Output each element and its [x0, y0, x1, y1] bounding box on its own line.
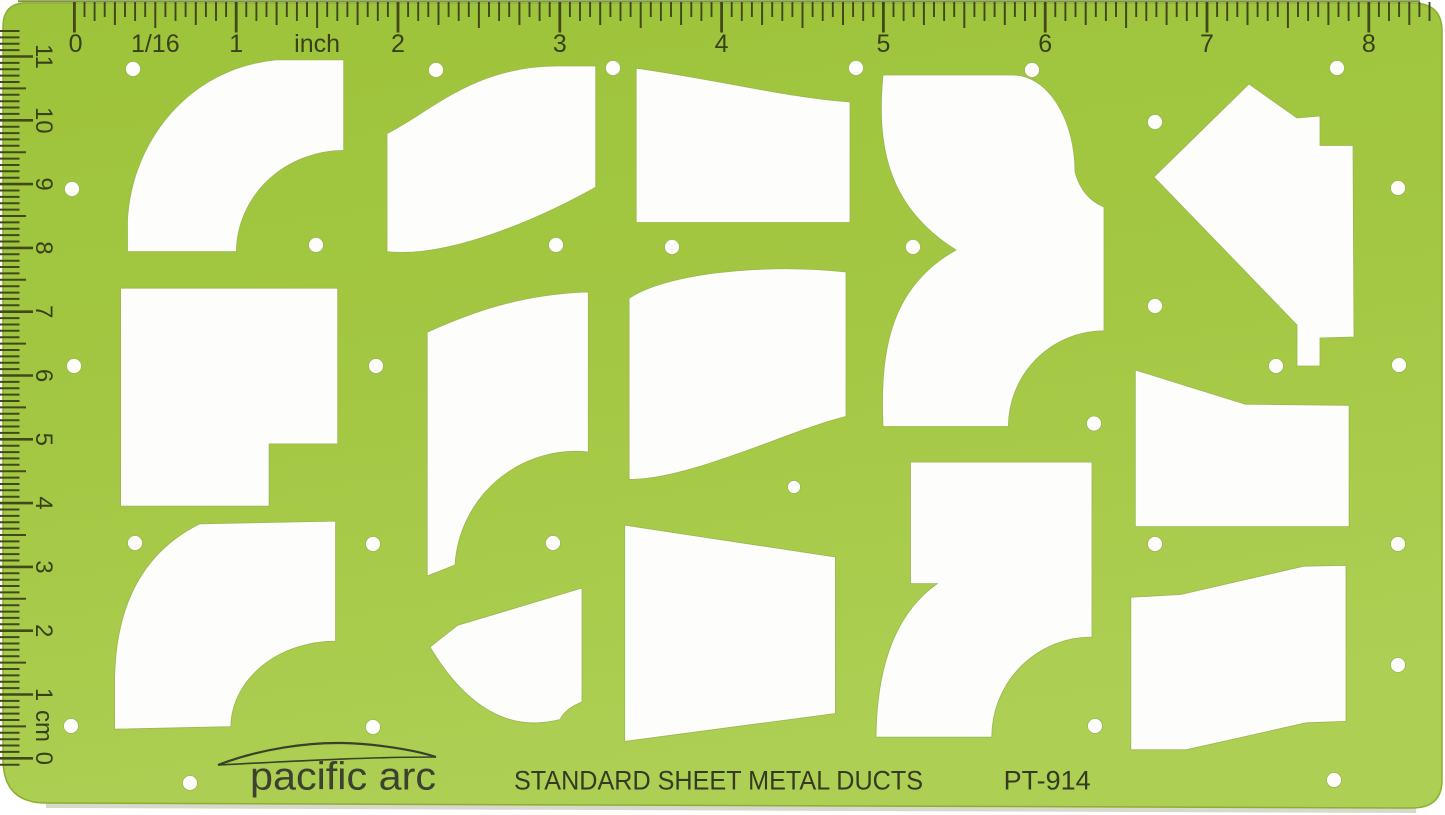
svg-text:inch: inch — [294, 30, 340, 58]
svg-text:5: 5 — [30, 433, 57, 446]
svg-text:4: 4 — [30, 496, 57, 509]
svg-text:0: 0 — [69, 30, 83, 58]
svg-text:1/16: 1/16 — [131, 30, 180, 58]
svg-text:2: 2 — [391, 30, 405, 58]
svg-text:7: 7 — [30, 305, 57, 318]
svg-text:pacific arc: pacific arc — [250, 756, 436, 799]
svg-text:4: 4 — [715, 30, 729, 58]
svg-text:10: 10 — [30, 107, 57, 134]
svg-text:5: 5 — [876, 30, 890, 58]
svg-text:11: 11 — [30, 44, 57, 69]
svg-text:STANDARD SHEET METAL DUCTS: STANDARD SHEET METAL DUCTS — [514, 766, 923, 796]
svg-text:0: 0 — [30, 752, 57, 765]
svg-text:1: 1 — [229, 30, 243, 58]
svg-text:1: 1 — [30, 688, 57, 701]
svg-text:PT-914: PT-914 — [1004, 766, 1091, 796]
svg-text:9: 9 — [30, 177, 57, 190]
svg-text:6: 6 — [1038, 30, 1052, 58]
svg-text:3: 3 — [553, 30, 567, 58]
svg-text:3: 3 — [30, 560, 57, 573]
svg-text:7: 7 — [1200, 30, 1214, 58]
svg-text:2: 2 — [30, 624, 57, 637]
svg-text:cm: cm — [30, 710, 57, 742]
svg-text:8: 8 — [1362, 30, 1376, 58]
svg-text:6: 6 — [30, 369, 57, 382]
svg-text:8: 8 — [30, 241, 57, 254]
